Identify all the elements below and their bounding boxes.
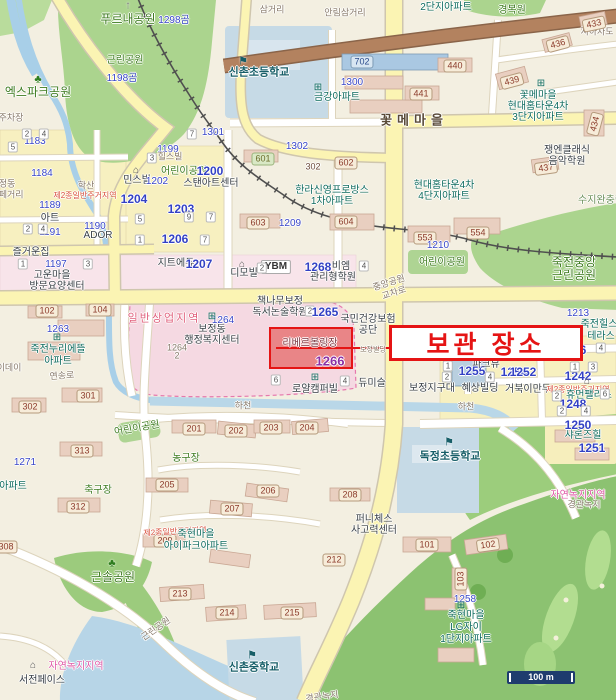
map-label[interactable]: 1300 xyxy=(341,78,363,88)
map-label[interactable]: 하천 xyxy=(235,402,252,411)
scale-text: 100 m xyxy=(528,673,554,682)
apartment-icon[interactable]: ⊞ xyxy=(208,312,216,322)
map-label[interactable]: 쟁엔클래식 xyxy=(544,146,590,156)
map-label[interactable]: 독정초등학교 xyxy=(420,452,481,463)
map-label[interactable]: 1251 xyxy=(579,442,606,454)
map-label[interactable]: 죽현마을 xyxy=(178,530,215,540)
map-label[interactable]: 602 xyxy=(334,157,357,170)
map-label[interactable]: 현대홈타운4차 xyxy=(508,102,569,112)
map-label[interactable]: 신촌중학교 xyxy=(229,663,280,674)
map-label[interactable]: 행정복지센터 xyxy=(184,336,239,346)
map-label[interactable]: 212 xyxy=(322,554,345,567)
map-label[interactable]: 엑스파크공원 xyxy=(5,86,71,98)
map-label[interactable]: 702 xyxy=(350,56,373,69)
map-label[interactable]: 사고력센터 xyxy=(351,526,397,536)
map-label[interactable]: 즐거운집 xyxy=(13,248,50,258)
map-label[interactable]: 5 xyxy=(135,214,145,225)
map-label[interactable]: 301 xyxy=(76,390,99,403)
map-label[interactable]: 1302 xyxy=(286,142,308,152)
map-label[interactable]: 근린공원 xyxy=(552,269,596,281)
map-label[interactable]: 2 xyxy=(557,406,567,417)
map-label[interactable]: 책나무보정 xyxy=(257,297,303,307)
map-label[interactable]: 농구장 xyxy=(172,454,200,464)
map-label[interactable]: 방문요양센터 xyxy=(29,282,84,292)
map-label[interactable]: 1 xyxy=(570,362,580,373)
map-label[interactable]: 공단 xyxy=(359,326,377,336)
map-label[interactable]: 어린이공원 xyxy=(419,258,465,268)
map-label[interactable]: 4 xyxy=(485,372,495,383)
map-label[interactable]: 로얄캠퍼빌 xyxy=(292,385,338,395)
scale-bar: 100 m xyxy=(507,671,575,684)
map-label[interactable]: 6 xyxy=(600,389,610,400)
map-label[interactable]: 302 xyxy=(18,401,41,414)
map-label[interactable]: 313 xyxy=(70,445,93,458)
map-label[interactable]: 파크뷰 xyxy=(472,360,500,370)
map-label[interactable]: 서전페이스 xyxy=(19,676,65,686)
map-label[interactable]: 혜상빌딩 xyxy=(462,384,499,394)
map-label[interactable]: 603 xyxy=(246,217,269,230)
map-label[interactable]: 207 xyxy=(220,503,243,516)
map-label[interactable]: 보정지구대 xyxy=(409,384,455,394)
tree-icon[interactable]: ♣ xyxy=(108,559,115,570)
map-label[interactable]: 1189 xyxy=(39,201,61,211)
map-label[interactable]: 1271 xyxy=(14,458,36,468)
map-label[interactable]: 1단지아파트 xyxy=(440,635,492,645)
map-label[interactable]: 102 xyxy=(35,305,58,318)
map-label[interactable]: 213 xyxy=(168,588,191,601)
map-label[interactable]: 힐스빌 xyxy=(158,153,183,162)
map-label[interactable]: 2 xyxy=(22,129,32,140)
map-label[interactable]: 312 xyxy=(66,501,89,514)
map-label[interactable]: 일반상업지역 xyxy=(128,314,201,325)
map-label[interactable]: 국민건강보험 xyxy=(340,315,395,325)
annotation-text: 보관 장소 xyxy=(427,325,546,361)
map-label[interactable]: 이데이 xyxy=(0,364,21,373)
building-icon[interactable]: ⌂ xyxy=(30,661,36,671)
map-label[interactable]: 2 xyxy=(442,372,452,383)
map-label[interactable]: 1 xyxy=(135,235,145,246)
map-label[interactable]: 경관녹지 xyxy=(567,501,600,510)
map-label[interactable]: 1198곰 xyxy=(107,74,138,84)
map-label[interactable]: 1210 xyxy=(427,241,449,251)
map-label[interactable]: 아파트 xyxy=(0,482,27,492)
map-label[interactable]: 3 xyxy=(147,153,157,164)
map-label[interactable]: 1184 xyxy=(31,169,53,179)
school-icon[interactable]: ⚑ xyxy=(444,438,454,449)
map-label[interactable]: 1197 xyxy=(45,260,67,270)
map-label[interactable]: 푸르내공원 xyxy=(100,13,155,25)
map-label[interactable]: 디모빌 xyxy=(230,269,258,279)
map-label[interactable]: 554 xyxy=(466,227,489,240)
building-icon[interactable]: ⌂ xyxy=(239,260,245,270)
map-label[interactable]: 삼거리 xyxy=(260,6,285,15)
map-label[interactable]: 꽃메마을 xyxy=(520,91,557,101)
map-label[interactable]: 441 xyxy=(409,88,432,101)
map-label[interactable]: 308 xyxy=(0,541,18,554)
map-label[interactable]: 214 xyxy=(215,607,238,620)
map-label[interactable]: 제2종일반주거지역 xyxy=(53,192,116,200)
map-label[interactable]: 201 xyxy=(182,423,205,436)
map-label[interactable]: 4 xyxy=(340,376,350,387)
map-label[interactable]: 보정빌딩 xyxy=(360,347,386,354)
map-label[interactable]: 아파트 xyxy=(44,357,72,367)
map-label[interactable]: 하천 xyxy=(458,403,475,412)
map-viewport[interactable]: 푸르내공원1298곰근린공원1198곰엑스파크공원삼거리안림삼거리경복원2단지아… xyxy=(0,0,616,700)
map-label[interactable]: 4 xyxy=(38,224,48,235)
map-label[interactable]: 학산 xyxy=(78,182,95,191)
map-label[interactable]: 208 xyxy=(338,489,361,502)
annotation-box: 보관 장소 xyxy=(389,325,583,361)
map-label[interactable]: 2 xyxy=(174,352,179,361)
map-label[interactable]: 5 xyxy=(8,142,18,153)
map-label[interactable]: 2 xyxy=(552,391,562,402)
map-label[interactable]: 4단지아파트 xyxy=(418,192,470,202)
map-label[interactable]: 1265 xyxy=(312,306,339,318)
map-label[interactable]: 1 xyxy=(18,259,28,270)
map-label[interactable]: 안림삼거리 xyxy=(324,9,365,18)
apartment-icon[interactable]: ⊞ xyxy=(53,333,61,343)
map-label[interactable]: 1209 xyxy=(279,219,301,229)
map-label[interactable]: 아이파크아파트 xyxy=(164,542,228,552)
map-label[interactable]: 4 xyxy=(359,261,369,272)
map-label[interactable]: 2 xyxy=(23,224,33,235)
map-label[interactable]: 연송로 xyxy=(49,371,74,382)
map-label[interactable]: 1 xyxy=(443,361,453,372)
map-label[interactable]: 자연녹지지역 xyxy=(48,662,103,672)
map-label[interactable]: 1266 xyxy=(316,355,345,368)
map-label[interactable]: 1200 xyxy=(197,165,224,177)
map-label[interactable]: 4 xyxy=(581,406,591,417)
map-label[interactable]: 1204 xyxy=(121,193,148,205)
map-label[interactable]: 215 xyxy=(280,607,303,620)
map-label[interactable]: 음악학원 xyxy=(549,157,586,167)
map-label[interactable]: 관리형학원 xyxy=(310,273,356,283)
map-label[interactable]: 샤론즈힐 xyxy=(565,431,602,441)
map-label[interactable]: 고운마을 xyxy=(34,271,71,281)
map-label[interactable]: 203 xyxy=(259,422,282,435)
map-label[interactable]: 수지완충림 xyxy=(578,196,616,206)
map-label[interactable]: 4 xyxy=(39,129,49,140)
map-label[interactable]: 듀미슬 xyxy=(358,379,386,389)
map-label[interactable]: 103 xyxy=(455,567,468,590)
apartment-icon[interactable]: ⊞ xyxy=(314,83,322,93)
map-label[interactable]: 스탠아트센터 xyxy=(183,179,238,189)
apartment-icon[interactable]: ⊞ xyxy=(537,79,545,89)
map-label[interactable]: 9 xyxy=(184,212,194,223)
tree-icon[interactable]: ♣ xyxy=(34,75,41,86)
map-label[interactable]: 2 xyxy=(257,263,267,274)
map-label[interactable]: 1차아파트 xyxy=(311,197,353,207)
map-label[interactable]: 7 xyxy=(206,212,216,223)
map-label[interactable]: 축구장 xyxy=(84,486,112,496)
map-label[interactable]: 금강아파트 xyxy=(314,93,360,103)
map-label[interactable]: 근린공원 xyxy=(107,56,144,66)
map-label[interactable]: 1206 xyxy=(162,233,189,245)
map-label[interactable]: LG자이 xyxy=(450,623,482,633)
map-label[interactable]: 6 xyxy=(271,375,281,386)
map-label[interactable]: 독서논술학원 xyxy=(252,308,307,318)
map-label[interactable]: 601 xyxy=(251,153,274,166)
map-label[interactable]: 1250 xyxy=(565,419,592,431)
map-label[interactable]: ADOR xyxy=(84,231,113,241)
map-label[interactable]: 440 xyxy=(443,60,466,73)
map-label[interactable]: 1207 xyxy=(186,258,213,270)
building-icon[interactable]: ⌂ xyxy=(584,377,590,387)
map-label[interactable]: 보정동 xyxy=(198,325,226,335)
school-icon[interactable]: ⚑ xyxy=(247,651,257,662)
map-label[interactable]: 현대홈타운4차 xyxy=(414,181,475,191)
school-icon[interactable]: ⚑ xyxy=(238,57,248,68)
map-label[interactable]: 죽현마을 xyxy=(448,611,485,621)
map-label[interactable]: 604 xyxy=(334,216,357,229)
map-label[interactable]: 근솔공원 xyxy=(91,571,135,583)
map-label[interactable]: 2단지아파트 xyxy=(420,3,472,13)
apartment-icon[interactable]: ⊞ xyxy=(457,601,465,611)
map-label[interactable]: 204 xyxy=(295,422,318,435)
map-label[interactable]: 테라스 xyxy=(587,332,615,342)
map-label[interactable]: 거북이만두 xyxy=(505,385,551,395)
map-label[interactable]: 202 xyxy=(224,425,247,438)
apartment-icon[interactable]: ⊞ xyxy=(311,373,319,383)
map-label[interactable]: 1298곰 xyxy=(158,16,189,26)
map-label[interactable]: 카페거리 xyxy=(0,191,24,200)
map-label[interactable]: 7 xyxy=(200,235,210,246)
map-label[interactable]: 1213 xyxy=(567,309,589,319)
map-label[interactable]: 비엠 xyxy=(332,262,350,272)
map-label[interactable]: 4 xyxy=(596,343,606,354)
map-label[interactable]: 경복원 xyxy=(498,6,526,16)
map-label[interactable]: 신촌초등학교 xyxy=(229,68,290,79)
map-label[interactable]: 3단지아파트 xyxy=(512,113,564,123)
map-label[interactable]: 한라신영프로방스 xyxy=(295,186,369,196)
map-label[interactable]: 3 xyxy=(588,362,598,373)
map-label[interactable]: 죽전중앙 xyxy=(552,256,596,268)
map-label[interactable]: 리베르볼링장 xyxy=(282,339,337,349)
map-label[interactable]: 1202 xyxy=(146,177,168,187)
map-label[interactable]: 아트 xyxy=(41,214,59,224)
map-label[interactable]: 주차장 xyxy=(0,114,23,123)
map-label[interactable]: 206 xyxy=(256,485,279,498)
map-label[interactable]: 죽전힐스 xyxy=(581,320,616,330)
map-label[interactable]: 7 xyxy=(187,129,197,140)
map-label[interactable]: 205 xyxy=(155,479,178,492)
map-label[interactable]: 302 xyxy=(305,163,320,172)
building-icon[interactable]: ⌂ xyxy=(133,166,139,176)
up-arrow-icon[interactable]: ↑ xyxy=(125,1,131,12)
map-label[interactable]: 104 xyxy=(88,304,111,317)
map-label[interactable]: 죽전누리에뜰 xyxy=(30,345,85,355)
map-label[interactable]: 101 xyxy=(415,539,438,552)
map-label[interactable]: 퍼니체스 xyxy=(356,515,393,525)
map-label[interactable]: 3 xyxy=(83,259,93,270)
map-label[interactable]: 1252 xyxy=(510,366,537,378)
map-label[interactable]: 1301 xyxy=(202,128,224,138)
map-label[interactable]: 보정동 xyxy=(0,180,15,189)
map-label[interactable]: 꽃메마을 xyxy=(380,114,448,127)
